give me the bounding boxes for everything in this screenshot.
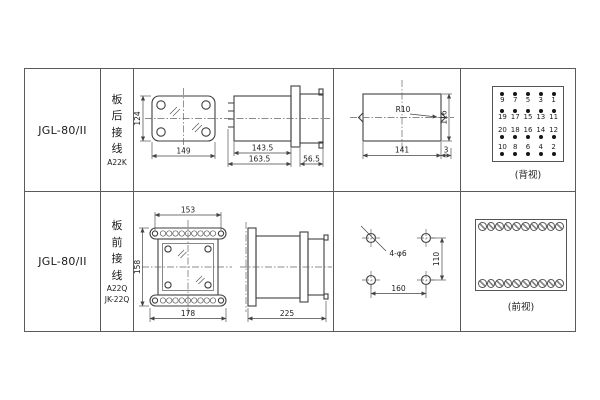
terminal-number: 8 bbox=[513, 144, 517, 151]
terminal: 8 bbox=[509, 144, 522, 156]
rear-wiring-drawings-cell: 124 149 bbox=[134, 69, 334, 191]
front-terminal-row bbox=[478, 279, 564, 288]
terminal-number: 12 bbox=[549, 127, 558, 134]
terminal: 1 bbox=[547, 92, 560, 104]
terminal: 4 bbox=[534, 144, 547, 156]
terminal: 3 bbox=[534, 92, 547, 104]
wiring-type-cell: 板后接线 A22K bbox=[101, 69, 134, 191]
rear-terminal-cell: 9753119171513112018161412108642 (背视) bbox=[461, 69, 575, 191]
dim-110: 110 bbox=[432, 252, 441, 267]
screw-terminal-icon bbox=[512, 222, 521, 231]
dim-124: 124 bbox=[134, 111, 142, 126]
rear-wiring-drawing: 124 149 bbox=[134, 69, 334, 191]
screw-terminal-icon bbox=[504, 222, 513, 231]
front-view-caption: (前视) bbox=[475, 299, 567, 313]
screw-terminal-icon bbox=[555, 279, 564, 288]
rear-terminal-grid: 9753119171513112018161412108642 bbox=[492, 86, 564, 162]
relay-dimension-sheet: JGL-80/II 板后接线 A22K bbox=[0, 0, 600, 400]
terminal-number: 18 bbox=[511, 127, 520, 134]
side-view: 143.5 163.5 56.5 bbox=[224, 86, 330, 167]
terminal-number: 13 bbox=[536, 114, 545, 121]
terminal: 13 bbox=[534, 109, 547, 121]
terminal-number: 14 bbox=[536, 127, 545, 134]
front-wiring-drawings-cell: 153 158 178 bbox=[134, 192, 334, 331]
front-wiring-drawing: 153 158 178 bbox=[134, 192, 334, 331]
screw-terminal-icon bbox=[547, 222, 556, 231]
dim-56-5: 56.5 bbox=[303, 155, 320, 164]
screw-terminal-icon bbox=[495, 222, 504, 231]
terminal-row: 2018161412 bbox=[496, 127, 560, 139]
screw-terminal-icon bbox=[538, 222, 547, 231]
terminal-dot-icon bbox=[513, 135, 517, 139]
terminal: 11 bbox=[547, 109, 560, 121]
terminal-row: 1917151311 bbox=[496, 109, 560, 121]
front-face-view: 153 158 178 bbox=[134, 206, 232, 323]
screw-terminal-icon bbox=[478, 222, 487, 231]
terminal-number: 2 bbox=[551, 144, 555, 151]
table-row-rear-wiring: JGL-80/II 板后接线 A22K bbox=[25, 69, 575, 192]
terminal: 6 bbox=[522, 144, 535, 156]
dim-163-5: 163.5 bbox=[249, 155, 271, 164]
wiring-code: A22Q bbox=[107, 284, 128, 294]
terminal-number: 1 bbox=[551, 97, 555, 104]
terminal-dot-icon bbox=[552, 152, 556, 156]
terminal-number: 10 bbox=[498, 144, 507, 151]
wiring-code: A22K bbox=[107, 158, 127, 168]
mounting-holes-cell: 4-φ6 110 160 bbox=[334, 192, 461, 331]
terminal: 15 bbox=[522, 109, 535, 121]
terminal-number: 15 bbox=[524, 114, 533, 121]
wiring-code-2: JK-22Q bbox=[105, 295, 130, 305]
screw-terminal-icon bbox=[555, 222, 564, 231]
terminal: 12 bbox=[547, 127, 560, 139]
wiring-type-label: 板后接线 bbox=[111, 92, 124, 158]
front-terminal-row bbox=[478, 222, 564, 231]
wiring-type-cell: 板前接线 A22Q JK-22Q bbox=[101, 192, 134, 331]
terminal-number: 17 bbox=[511, 114, 520, 121]
terminal: 14 bbox=[534, 127, 547, 139]
terminal-dot-icon bbox=[513, 152, 517, 156]
dim-153: 153 bbox=[181, 206, 196, 215]
dim-178: 178 bbox=[181, 309, 196, 318]
panel-cutout-drawing: R10 116 141 3 bbox=[334, 69, 461, 191]
screw-terminal-icon bbox=[538, 279, 547, 288]
dimension-table: JGL-80/II 板后接线 A22K bbox=[24, 68, 576, 332]
terminal-number: 3 bbox=[539, 97, 543, 104]
terminal-number: 6 bbox=[526, 144, 530, 151]
screw-terminal-icon bbox=[530, 222, 539, 231]
terminal: 5 bbox=[522, 92, 535, 104]
terminal-number: 19 bbox=[498, 114, 507, 121]
screw-terminal-icon bbox=[521, 222, 530, 231]
front-face-view: 124 149 bbox=[134, 88, 222, 159]
terminal: 10 bbox=[496, 144, 509, 156]
terminal: 18 bbox=[509, 127, 522, 139]
model-label: JGL-80/II bbox=[38, 124, 87, 137]
terminal-dot-icon bbox=[500, 135, 504, 139]
terminal: 17 bbox=[509, 109, 522, 121]
panel-cutout-cell: R10 116 141 3 bbox=[334, 69, 461, 191]
terminal: 19 bbox=[496, 109, 509, 121]
terminal-dot-icon bbox=[539, 135, 543, 139]
screw-terminal-icon bbox=[504, 279, 513, 288]
dim-3: 3 bbox=[444, 146, 449, 155]
terminal-number: 11 bbox=[549, 114, 558, 121]
screw-terminal-icon bbox=[530, 279, 539, 288]
terminal-number: 9 bbox=[500, 97, 504, 104]
wiring-type-label: 板前接线 bbox=[111, 218, 124, 284]
terminal-number: 5 bbox=[526, 97, 530, 104]
terminal-dot-icon bbox=[539, 152, 543, 156]
screw-terminal-icon bbox=[512, 279, 521, 288]
terminal-row: 97531 bbox=[496, 92, 560, 104]
screw-terminal-icon bbox=[487, 222, 496, 231]
terminal: 16 bbox=[522, 127, 535, 139]
dim-116: 116 bbox=[440, 110, 449, 125]
screw-terminal-icon bbox=[521, 279, 530, 288]
mounting-holes-drawing: 4-φ6 110 160 bbox=[334, 192, 461, 331]
dim-225: 225 bbox=[280, 309, 295, 318]
table-row-front-wiring: JGL-80/II 板前接线 A22Q JK-22Q bbox=[25, 192, 575, 331]
terminal-number: 4 bbox=[539, 144, 543, 151]
terminal-dot-icon bbox=[552, 135, 556, 139]
dim-143-5: 143.5 bbox=[252, 144, 274, 153]
terminal: 20 bbox=[496, 127, 509, 139]
model-label: JGL-80/II bbox=[38, 255, 87, 268]
holes-label: 4-φ6 bbox=[389, 249, 406, 258]
front-terminal-cell: (前视) bbox=[461, 192, 575, 331]
cutout-radius-label: R10 bbox=[396, 105, 411, 114]
front-terminal-box bbox=[475, 219, 567, 291]
terminal-row: 108642 bbox=[496, 144, 560, 156]
terminal-number: 7 bbox=[513, 97, 517, 104]
terminal-number: 20 bbox=[498, 127, 507, 134]
terminal-dot-icon bbox=[526, 135, 530, 139]
model-cell: JGL-80/II bbox=[25, 69, 101, 191]
screw-terminal-icon bbox=[487, 279, 496, 288]
terminal: 2 bbox=[547, 144, 560, 156]
terminal-number: 16 bbox=[524, 127, 533, 134]
terminal-dot-icon bbox=[526, 152, 530, 156]
side-view: 225 bbox=[240, 222, 332, 322]
terminal: 7 bbox=[509, 92, 522, 104]
dim-160: 160 bbox=[391, 284, 406, 293]
terminal: 9 bbox=[496, 92, 509, 104]
model-cell: JGL-80/II bbox=[25, 192, 101, 331]
dim-141: 141 bbox=[395, 146, 410, 155]
screw-terminal-icon bbox=[478, 279, 487, 288]
rear-view-caption: (背视) bbox=[492, 167, 564, 181]
screw-terminal-icon bbox=[547, 279, 556, 288]
dim-158: 158 bbox=[134, 260, 142, 275]
dim-149: 149 bbox=[176, 147, 191, 156]
terminal-dot-icon bbox=[500, 152, 504, 156]
screw-terminal-icon bbox=[495, 279, 504, 288]
